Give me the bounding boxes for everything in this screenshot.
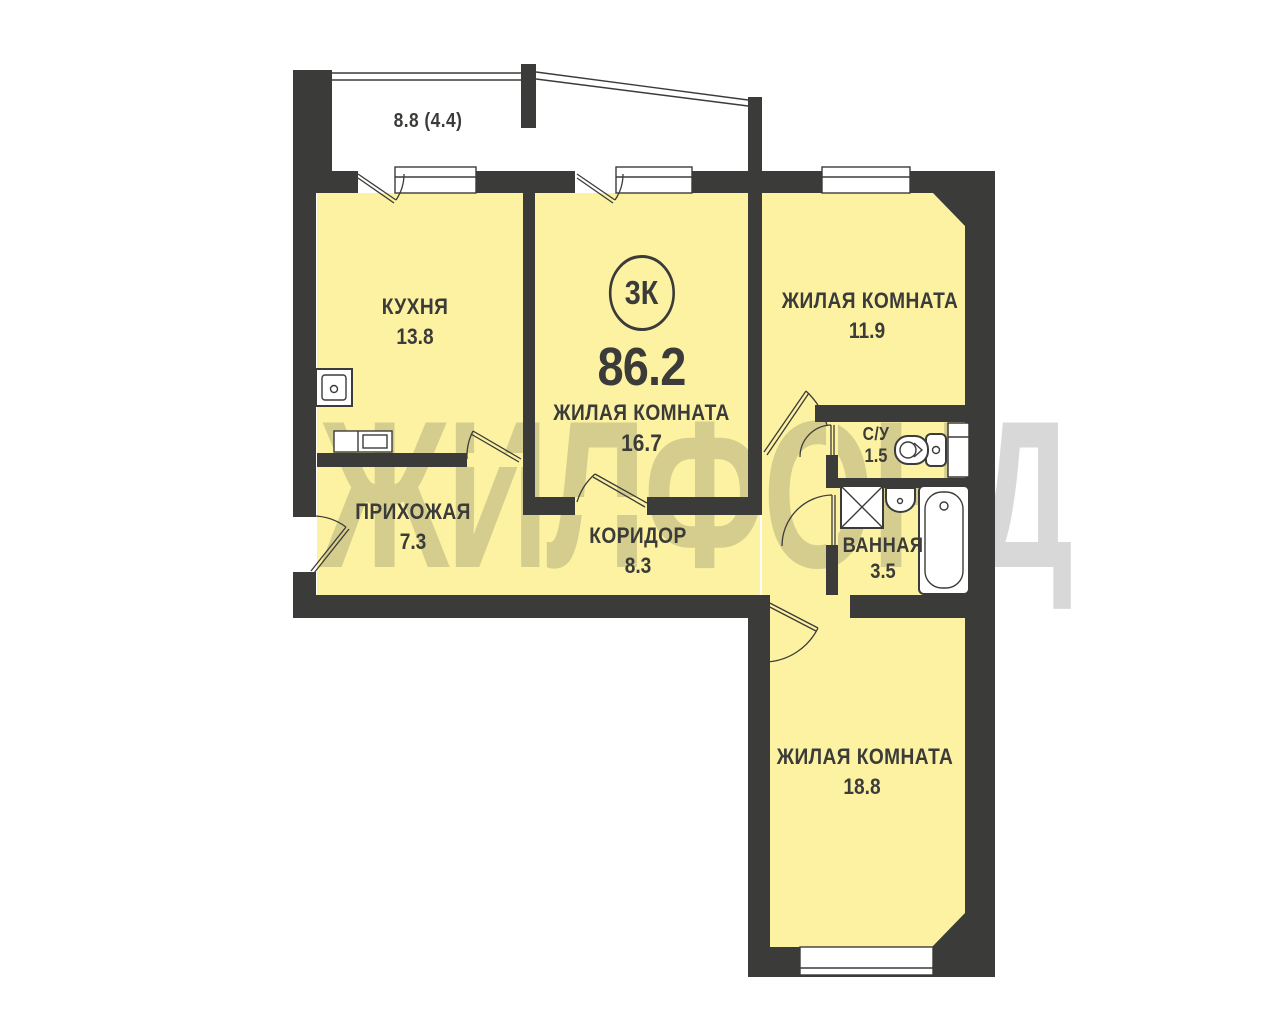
wall: [748, 171, 762, 515]
door-opening-entrance: [293, 517, 316, 572]
room-area: 7.3: [340, 529, 486, 554]
door-opening-balcony-living: [575, 171, 617, 193]
room-name: КОРИДОР: [565, 523, 711, 548]
room-name: ВАННАЯ: [818, 534, 949, 558]
room-name: ЖИЛАЯ КОМНАТА: [777, 744, 948, 769]
wall: [523, 193, 535, 497]
wall: [293, 171, 995, 193]
room-name: КУХНЯ: [341, 294, 489, 319]
room-area: 11.9: [782, 318, 953, 343]
room-area: 16.7: [552, 430, 730, 458]
balcony-railing: [332, 72, 748, 106]
room-area: 3.5: [818, 560, 949, 584]
room-area: 13.8: [341, 324, 489, 349]
room-label-living-top-right: ЖИЛАЯ КОМНАТА 11.9: [782, 288, 953, 344]
wall: [815, 405, 995, 422]
room-label-bathroom: ВАННАЯ 3.5: [818, 534, 949, 584]
rooms-count-badge: 3К: [608, 255, 674, 331]
door-opening-balcony-kitchen: [358, 171, 398, 193]
balcony-area-text: 8.8 (4.4): [360, 110, 496, 133]
wall: [850, 595, 970, 618]
wall: [293, 595, 760, 618]
door-opening-living-center: [575, 497, 647, 515]
room-area: 1.5: [841, 446, 911, 468]
room-name: ЖИЛАЯ КОМНАТА: [782, 288, 953, 313]
room-label-corridor: КОРИДОР 8.3: [565, 523, 711, 579]
room-label-kitchen: КУХНЯ 13.8: [341, 294, 489, 350]
wall: [523, 497, 577, 515]
room-name: ЖИЛАЯ КОМНАТА: [552, 400, 730, 425]
wall: [748, 97, 762, 173]
wall: [293, 70, 332, 173]
room-name: С/У: [841, 424, 911, 445]
room-area: 18.8: [777, 774, 948, 799]
wall: [748, 595, 770, 977]
room-label-hallway: ПРИХОЖАЯ 7.3: [340, 499, 486, 555]
balcony-label: 8.8 (4.4): [360, 110, 496, 133]
room-label-living-bottom-right: ЖИЛАЯ КОМНАТА 18.8: [777, 744, 948, 800]
total-area: 86.2: [552, 336, 730, 398]
door-opening-kitchen: [467, 453, 523, 467]
room-name: ПРИХОЖАЯ: [340, 499, 486, 524]
door-opening-wc: [826, 422, 838, 455]
room-label-living-center: 3К 86.2 ЖИЛАЯ КОМНАТА 16.7: [552, 255, 730, 458]
wall: [647, 497, 760, 515]
room-label-wc: С/У 1.5: [841, 424, 911, 468]
wall: [748, 947, 995, 977]
wall: [521, 64, 536, 128]
wall: [965, 171, 995, 977]
floor-plan: ЖИЛФОНД: [0, 0, 1280, 1024]
door-opening-living-bottom: [770, 595, 850, 618]
wall: [826, 478, 968, 488]
wall: [317, 453, 467, 467]
room-area: 8.3: [565, 553, 711, 578]
